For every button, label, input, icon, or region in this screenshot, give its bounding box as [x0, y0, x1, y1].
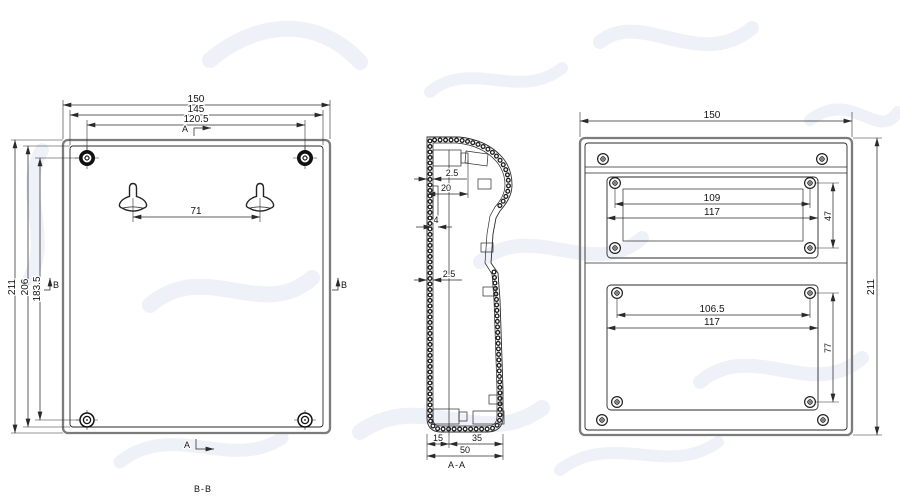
section-marker-a-top: A [182, 124, 211, 136]
screw-icon [805, 243, 816, 254]
front-keyhole-dimension: 71 [133, 198, 260, 222]
section-marker-a-label: A [184, 440, 190, 450]
dim-front-inner-height: 206 [20, 278, 31, 295]
screw-icon [610, 243, 621, 254]
technical-drawing-page: 150 145 120.5 A 211 206 [0, 0, 900, 500]
front-section-label: B-B [194, 484, 212, 494]
screw-icon [598, 154, 609, 165]
dim-lower-width: 117 [704, 317, 720, 328]
dim-back-overall-height: 211 [866, 279, 877, 295]
dim-front-overall-height: 211 [7, 279, 18, 295]
screw-icon [293, 147, 317, 169]
back-overall-dimensions: 150 211 [580, 110, 882, 435]
side-wall-hatch [430, 272, 500, 429]
screw-icon [612, 288, 623, 299]
dim-front-keyhole-span: 71 [190, 206, 202, 217]
screw-icon [805, 397, 816, 408]
screw-icon [818, 415, 829, 426]
enclosure-drawing-svg: 150 145 120.5 A 211 206 [0, 0, 900, 500]
dim-side-rib: 4 [433, 215, 438, 225]
screw-icon [612, 397, 623, 408]
screw-icon [597, 415, 608, 426]
dim-side-boss-depth: 20 [441, 183, 451, 193]
dim-upper-height: 47 [823, 211, 833, 221]
back-lower-panel: 106.5 117 77 [607, 285, 839, 410]
section-marker-b-label: B [53, 280, 59, 290]
dim-side-bottom-right: 35 [472, 433, 482, 443]
section-marker-a-label: A [182, 124, 188, 134]
dim-side-wall-top: 2.5 [446, 168, 459, 178]
dim-lower-screw-span: 106.5 [699, 304, 724, 315]
section-marker-b-left: B [44, 278, 59, 290]
section-marker-b-right: B [332, 278, 347, 290]
section-marker-b-label: B [341, 280, 347, 290]
dim-back-overall-width: 150 [704, 110, 721, 121]
dim-lower-height: 77 [823, 343, 833, 353]
side-section-label: A-A [448, 460, 466, 470]
watermark-pattern [30, 28, 898, 470]
screw-icon [805, 178, 816, 189]
dim-front-screw-span-v: 183.5 [32, 276, 43, 301]
dim-side-bottom-left: 15 [433, 433, 443, 443]
dim-side-wall-mid: 2.5 [443, 269, 456, 279]
dim-upper-screw-span: 109 [704, 193, 721, 204]
back-view: 109 117 47 106.5 117 77 [580, 110, 882, 435]
front-left-dimensions: 211 206 183.5 [7, 140, 80, 433]
screw-icon [610, 178, 621, 189]
screw-icon [817, 154, 828, 165]
front-top-dimensions: 150 145 120.5 [63, 94, 330, 150]
screw-icon [805, 288, 816, 299]
dim-upper-width: 117 [704, 207, 720, 218]
dim-side-overall-depth: 50 [460, 445, 470, 455]
